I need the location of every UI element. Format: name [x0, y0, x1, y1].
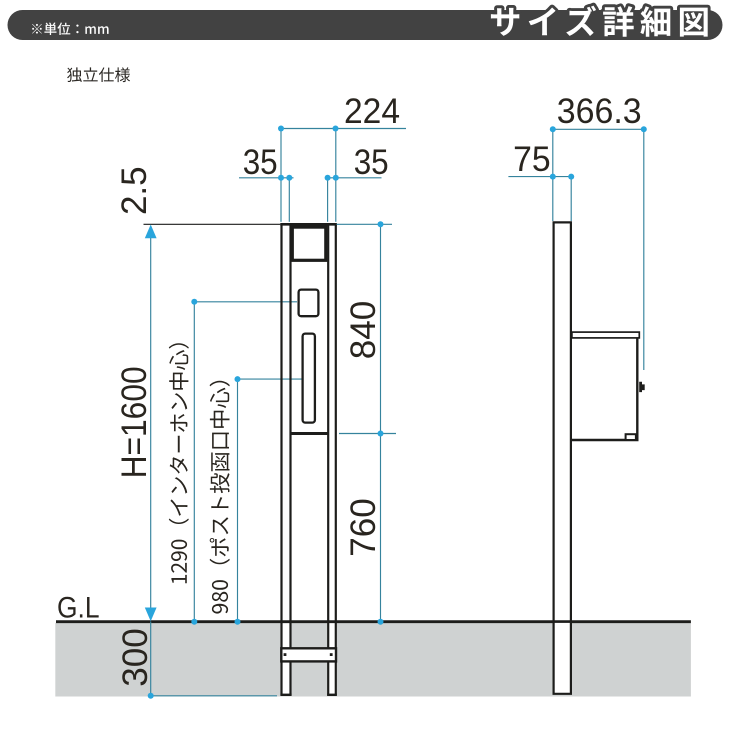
svg-text:366.3: 366.3	[557, 92, 642, 131]
svg-text:760: 760	[344, 498, 383, 557]
svg-text:840: 840	[344, 301, 383, 360]
svg-text:G.L: G.L	[57, 591, 100, 624]
svg-text:224: 224	[344, 92, 400, 131]
svg-text:H=1600: H=1600	[115, 366, 154, 478]
svg-text:35: 35	[243, 143, 278, 182]
svg-text:2.5: 2.5	[115, 166, 154, 215]
svg-text:75: 75	[513, 140, 551, 179]
svg-text:300: 300	[116, 628, 155, 687]
svg-text:35: 35	[354, 143, 389, 182]
